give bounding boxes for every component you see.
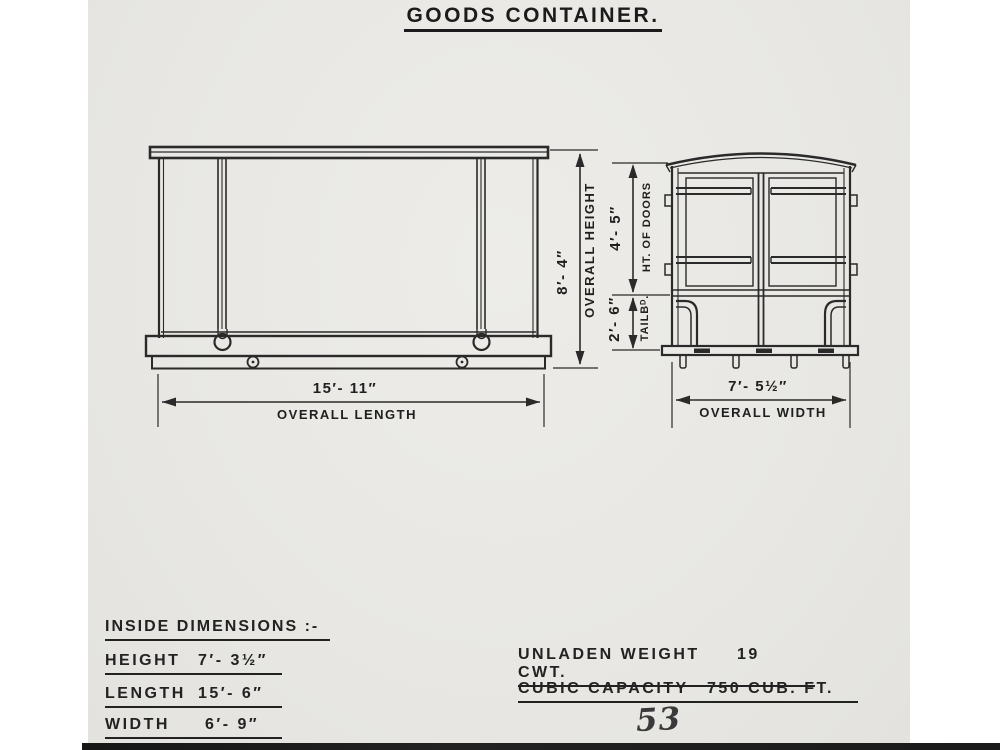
arrowhead-down-icon (576, 351, 585, 365)
side-roof-cap (150, 147, 548, 158)
inside-dim-row-length: LENGTH15′- 6″ (105, 685, 282, 708)
door-height-dimension: 4′- 5″ HT. OF DOORS 2′- 6″ TAILBᴰ. (606, 163, 670, 350)
inside-dim-row-width: WIDTH6′- 9″ (105, 716, 282, 739)
inside-height-value: 7′- 3½″ (198, 652, 268, 669)
overall-height-value: 8′- 4″ (554, 249, 571, 295)
overall-width-dimension: 7′- 5½″ OVERALL WIDTH (672, 362, 850, 428)
lashing-strap-left (215, 158, 231, 350)
overall-height-label: OVERALL HEIGHT (582, 182, 597, 318)
end-elevation-drawing (662, 154, 858, 369)
inside-length-label: LENGTH (105, 685, 198, 703)
overall-width-value: 7′- 5½″ (728, 378, 788, 395)
lashing-strap-right (474, 158, 490, 350)
cubic-capacity-label: CUBIC CAPACITY (518, 680, 707, 698)
arrowhead-down-icon (629, 279, 638, 293)
side-elevation-drawing (146, 147, 551, 369)
overall-height-dimension: 8′- 4″ OVERALL HEIGHT (550, 150, 598, 368)
arrowhead-up-icon (629, 164, 638, 178)
inside-width-label: WIDTH (105, 716, 205, 734)
cubic-capacity-value: 750 CUB. FT. (707, 680, 834, 697)
inside-width-value: 6′- 9″ (205, 716, 259, 733)
page-number: 53 (635, 701, 682, 739)
tailboard-height-value: 2′- 6″ (606, 296, 623, 342)
page-edge-shadow (82, 743, 1000, 750)
end-bottom-rail (662, 346, 858, 368)
spec-row-cubic-capacity: CUBIC CAPACITY750 CUB. FT. (518, 680, 858, 703)
arrowhead-up-icon (629, 297, 638, 311)
arrowhead-up-icon (576, 153, 585, 167)
door-height-value: 4′- 5″ (607, 205, 624, 251)
arrowhead-down-icon (629, 335, 638, 349)
inside-length-value: 15′- 6″ (198, 685, 263, 702)
container-doors (665, 173, 857, 346)
overall-length-value: 15′- 11″ (313, 380, 378, 397)
inside-dimensions-heading: INSIDE DIMENSIONS :- (105, 618, 330, 641)
end-roof-arch (666, 154, 856, 173)
arrowhead-right-icon (832, 396, 846, 405)
unladen-weight-label: UNLADEN WEIGHT (518, 646, 737, 664)
tailboard (672, 290, 850, 345)
arrowhead-left-icon (676, 396, 690, 405)
overall-length-label: OVERALL LENGTH (277, 407, 417, 422)
door-height-label: HT. OF DOORS (641, 182, 653, 272)
arrowhead-right-icon (526, 398, 540, 407)
overall-width-label: OVERALL WIDTH (699, 405, 827, 420)
inside-height-label: HEIGHT (105, 652, 198, 670)
inside-dim-row-height: HEIGHT7′- 3½″ (105, 652, 282, 675)
overall-length-dimension: 15′- 11″ OVERALL LENGTH (158, 374, 544, 427)
tailboard-height-label: TAILBᴰ. (639, 295, 651, 342)
arrowhead-left-icon (162, 398, 176, 407)
